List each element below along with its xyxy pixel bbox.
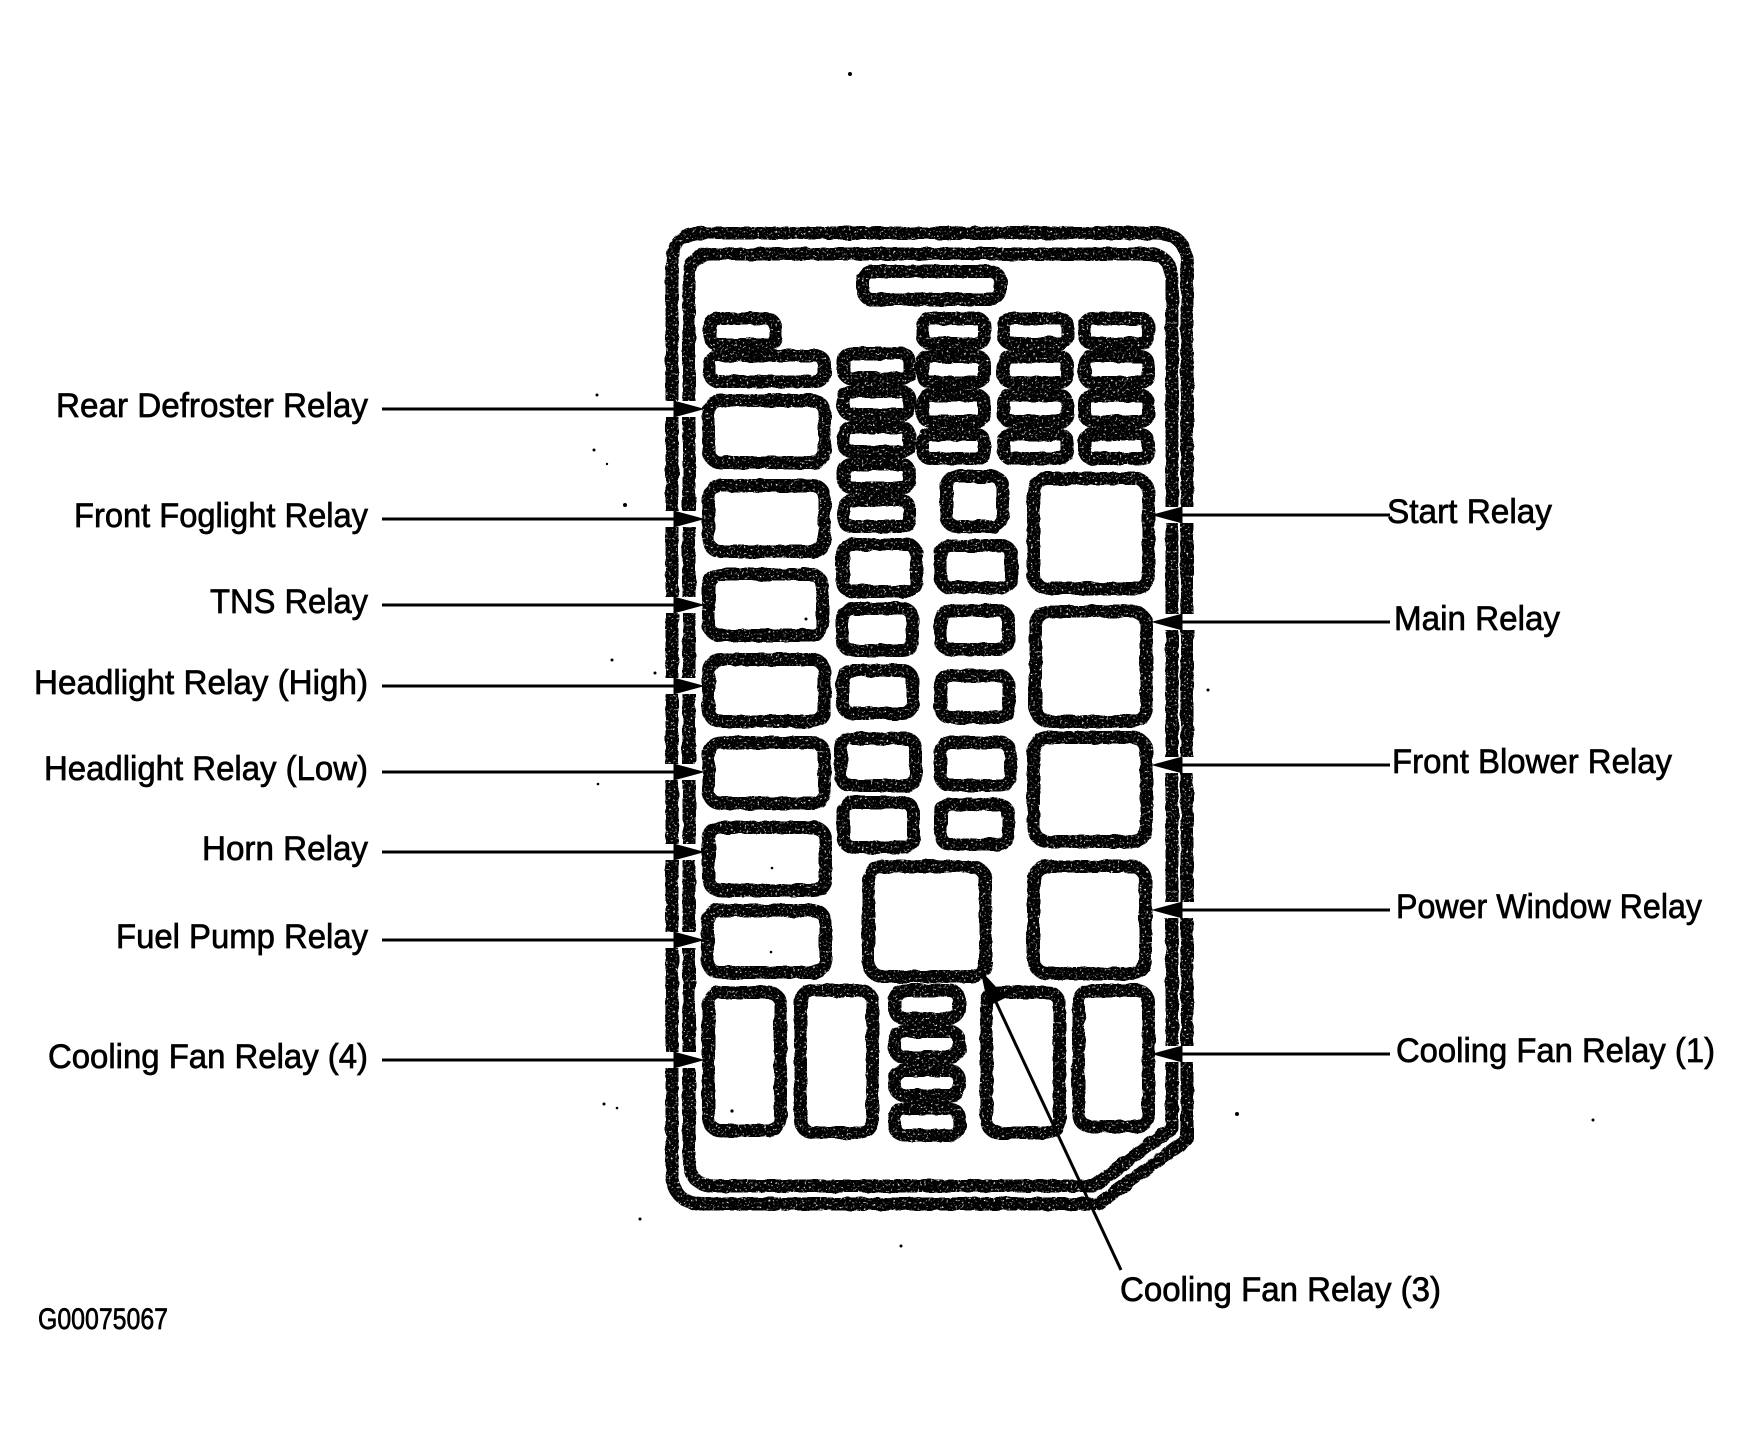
svg-text:Power Window Relay: Power Window Relay (1396, 888, 1702, 926)
svg-text:Front Foglight Relay: Front Foglight Relay (74, 497, 368, 535)
svg-text:Fuel Pump Relay: Fuel Pump Relay (116, 918, 368, 956)
svg-text:Cooling Fan Relay (4): Cooling Fan Relay (4) (48, 1038, 368, 1076)
svg-text:Cooling Fan Relay (3): Cooling Fan Relay (3) (1120, 1271, 1441, 1309)
svg-text:Start Relay: Start Relay (1387, 493, 1552, 531)
svg-text:Rear Defroster Relay: Rear Defroster Relay (56, 387, 368, 425)
svg-text:Headlight Relay (High): Headlight Relay (High) (34, 664, 368, 702)
svg-text:Front Blower Relay: Front Blower Relay (1392, 743, 1672, 781)
svg-text:G00075067: G00075067 (38, 1303, 168, 1336)
svg-text:Headlight Relay (Low): Headlight Relay (Low) (44, 750, 368, 788)
svg-text:Main Relay: Main Relay (1394, 600, 1560, 638)
svg-text:Cooling Fan Relay (1): Cooling Fan Relay (1) (1396, 1032, 1715, 1070)
svg-text:Horn Relay: Horn Relay (202, 830, 368, 868)
svg-text:TNS Relay: TNS Relay (210, 583, 368, 621)
